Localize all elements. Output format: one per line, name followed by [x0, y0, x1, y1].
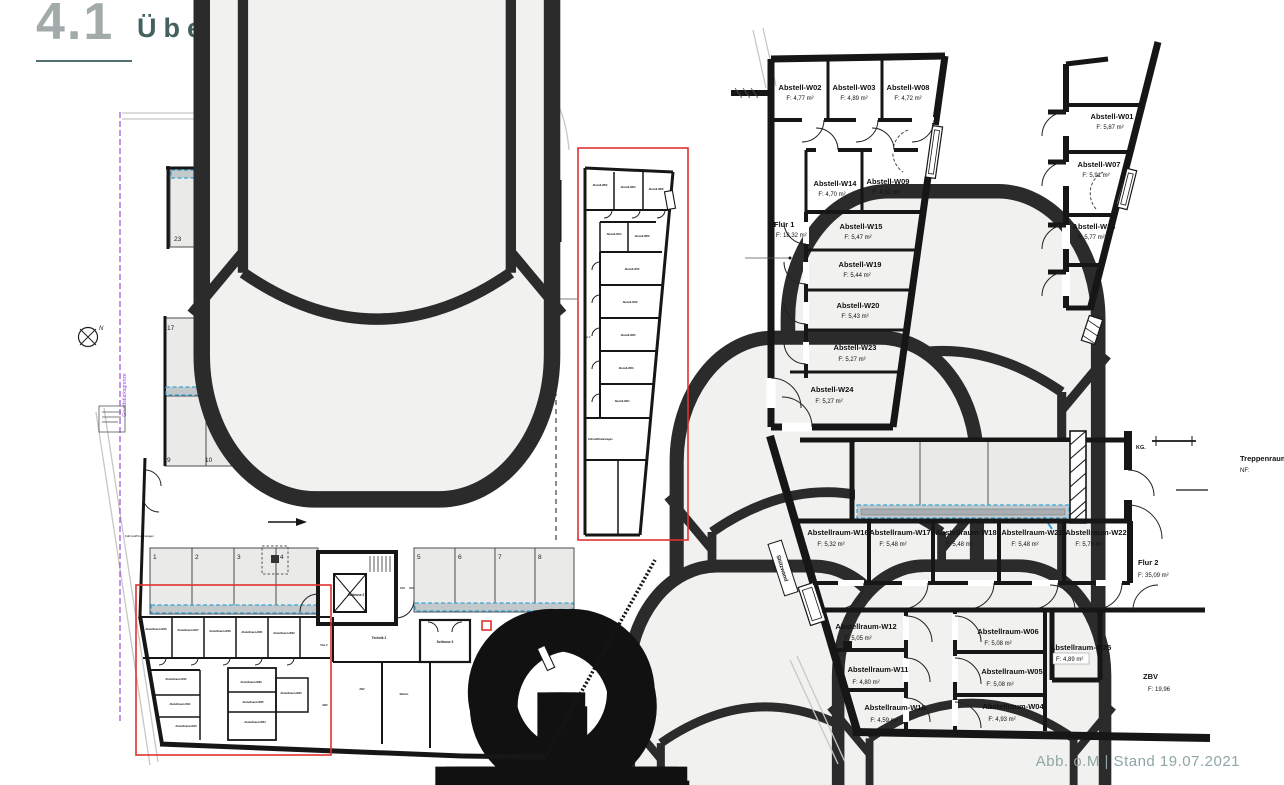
room-area: NF: [1240, 468, 1250, 474]
room-name: Abstell-W01 [1091, 112, 1134, 121]
room-label: Abstellraum-W05 [242, 700, 264, 704]
room-area: F: 19,96 [1148, 687, 1171, 693]
room-name: Abstellraum-W10 [864, 703, 925, 712]
room-name: ZBV [1143, 672, 1158, 681]
room-area: F: 4,62 m² [872, 190, 899, 196]
room-label: Schleuse 3 [437, 640, 454, 644]
north-arrow-icon: N [79, 326, 105, 347]
room-area: F: 5,32 m² [817, 542, 844, 548]
room-name: Abstellraum-W16 [807, 528, 868, 537]
room-area: F: 4,72 m² [894, 96, 921, 102]
room-label: Flur 2 [320, 643, 328, 647]
room-label: Abstellraum-W22 [273, 631, 295, 635]
svg-text:N: N [99, 326, 104, 332]
room-area: F: 5,27 m² [815, 399, 842, 405]
room-label: Abstell-W14 [607, 232, 622, 236]
room-name: Abstell-W15 [840, 222, 883, 231]
room-label: Abstell-W15 [625, 267, 640, 271]
room-area: F: 4,93 m² [988, 717, 1015, 723]
room-label: Fahrrad/Kinderwagen [588, 438, 613, 441]
room-name: Abstellraum-W11 [848, 665, 909, 674]
room-name: Abstellraum-W17 [869, 528, 930, 537]
room-label: Abstellraum-W10 [175, 724, 197, 728]
room-label: Abstellraum-W18 [209, 629, 231, 633]
room-area: F: 18,32 m² [776, 233, 807, 239]
room-area: F: 5,48 m² [1011, 542, 1038, 548]
room-label: Abstell-W09 [635, 234, 650, 238]
plan-page: 4.1 Übersichtsplan Tiefgarage | Keller [0, 0, 1284, 785]
room-area: F: 5,87 m² [1096, 125, 1123, 131]
room-label: Abstell-W23 [619, 366, 634, 370]
mini-storage-bottom: Abstellraum-W16 Abstellraum-W17 Abstellr… [140, 617, 330, 740]
room-area: F: 5,91 m² [1082, 173, 1109, 179]
mini-storage-column: Abstell-W02 Abstell-W03 Abstell-W08 Abst… [583, 168, 675, 535]
stall-number: 6 [458, 554, 462, 561]
room-label: Abstellraum-W25 [280, 691, 302, 695]
room-area: F: 5,08 m² [986, 682, 1013, 688]
room-area: F: 5,44 m² [843, 273, 870, 279]
room-area: F: 35,09 m² [1138, 573, 1169, 579]
room-area: F: 5,08 m² [984, 641, 1011, 647]
room-name: Abstellraum-W12 [835, 622, 896, 631]
level-label: KG. [1136, 445, 1146, 451]
room-name: Abstell-W24 [811, 385, 855, 394]
room-label: Elektro [400, 692, 409, 696]
room-label: Flur 1 [583, 335, 591, 339]
room-name: Abstell-W03 [833, 83, 876, 92]
caption-stand-date: Abb. o.M | Stand 19.07.2021 [1036, 753, 1240, 770]
stall-number: 4 [280, 554, 284, 561]
room-label: Abstell-W19 [623, 300, 638, 304]
room-name: Abstellraum-W22 [1065, 528, 1126, 537]
room-label: Schleuse 2 [348, 593, 365, 597]
room-label: Abstellraum-W16 [145, 627, 167, 631]
room-name: Abstell-W23 [834, 343, 877, 352]
room-name: Flur 1 [774, 220, 794, 229]
stall-number: 8 [538, 554, 542, 561]
stall-number: 23 [174, 236, 182, 243]
room-name: Abstell-W02 [779, 83, 822, 92]
highlight-marker [482, 621, 491, 630]
room-name: Abstell-W19 [839, 260, 882, 269]
room-area: F: 5,78 m² [1075, 542, 1102, 548]
room-label: Abstellraum-W21 [241, 630, 263, 634]
room-area: F: 4,77 m² [786, 96, 813, 102]
room-label: Abstellraum-W17 [177, 628, 199, 632]
room-area: F: 5,27 m² [838, 357, 865, 363]
room-name: Abstellraum-W25 [1050, 643, 1111, 652]
stall-number: 10 [205, 457, 213, 464]
room-name: Abstellraum-W18 [935, 528, 996, 537]
room-name: Abstell-W14 [814, 179, 858, 188]
stall-number: 3 [237, 554, 241, 561]
room-area: F: 5,05 m² [844, 636, 871, 642]
stairwell-schleuse2: Schleuse 2 [300, 552, 414, 624]
room-area: F: 4,80 m² [852, 680, 879, 686]
room-name: Abstell-W20 [837, 301, 880, 310]
room-label: Abstellraum-W12 [165, 677, 187, 681]
floor-plan-canvas: Grundstücksgrenze Grundstücksgrenze N 23 [0, 0, 1284, 785]
stall-number: 2 [195, 554, 199, 561]
stall-number: 7 [498, 554, 502, 561]
room-name: Abstell-W09 [867, 177, 910, 186]
room-name: Treppenraum [1240, 454, 1284, 463]
room-name: Abstell-W07 [1078, 160, 1121, 169]
room-label: ZBV [322, 703, 327, 707]
room-name: Abstell-W08 [887, 83, 930, 92]
room-label: Technik 3 [506, 655, 521, 659]
gutter-strip [151, 605, 317, 613]
room-label: Abstell-W03 [621, 185, 636, 189]
room-name: Abstell-W13 [1073, 222, 1116, 231]
room-area: F: 4,59 m² [870, 718, 897, 724]
stall-number: 17 [167, 325, 175, 332]
room-label: Abstellraum-W06 [240, 680, 262, 684]
room-label: Abstellraum-W04 [244, 720, 266, 724]
hatched-wall [1070, 431, 1086, 523]
room-area: F: 4,70 m² [818, 192, 845, 198]
room-name: Abstellraum-W04 [982, 702, 1044, 711]
stall-number: 9 [167, 457, 171, 464]
room-area: F: 4,89 m² [1056, 657, 1083, 663]
room-label: Abstell-W02 [593, 183, 608, 187]
room-name: Abstellraum-W06 [977, 627, 1038, 636]
stall-number: 1 [153, 554, 157, 561]
room-name: Abstellraum-W21 [1001, 528, 1062, 537]
stair-core-area: KG. Treppenraum NF: [1128, 431, 1284, 539]
room-area: F: 5,77 m² [1077, 235, 1104, 241]
stall-number: 5 [417, 554, 421, 561]
room-label: Abstell-W24 [615, 399, 630, 403]
door-symbol [664, 190, 675, 209]
room-area: F: 5,48 m² [945, 542, 972, 548]
room-area: F: 5,48 m² [879, 542, 906, 548]
room-label: Fahrrad/Kinderwagen [125, 534, 154, 538]
right-arrow-icon [296, 518, 307, 526]
room-name: Abstellraum-W05 [981, 667, 1042, 676]
room-label: Abstellraum-W11 [169, 702, 191, 706]
room-label: ZBV [359, 687, 364, 691]
room-label: Technik 2 [372, 636, 387, 640]
room-label: Abstell-W08 [649, 187, 664, 191]
room-area: F: 5,47 m² [844, 235, 871, 241]
room-label: Abstell-W20 [621, 333, 636, 337]
car-icon [191, 0, 562, 499]
room-area: F: 5,43 m² [841, 314, 868, 320]
room-area: F: 4,89 m² [840, 96, 867, 102]
room-name: Flur 2 [1138, 558, 1158, 567]
